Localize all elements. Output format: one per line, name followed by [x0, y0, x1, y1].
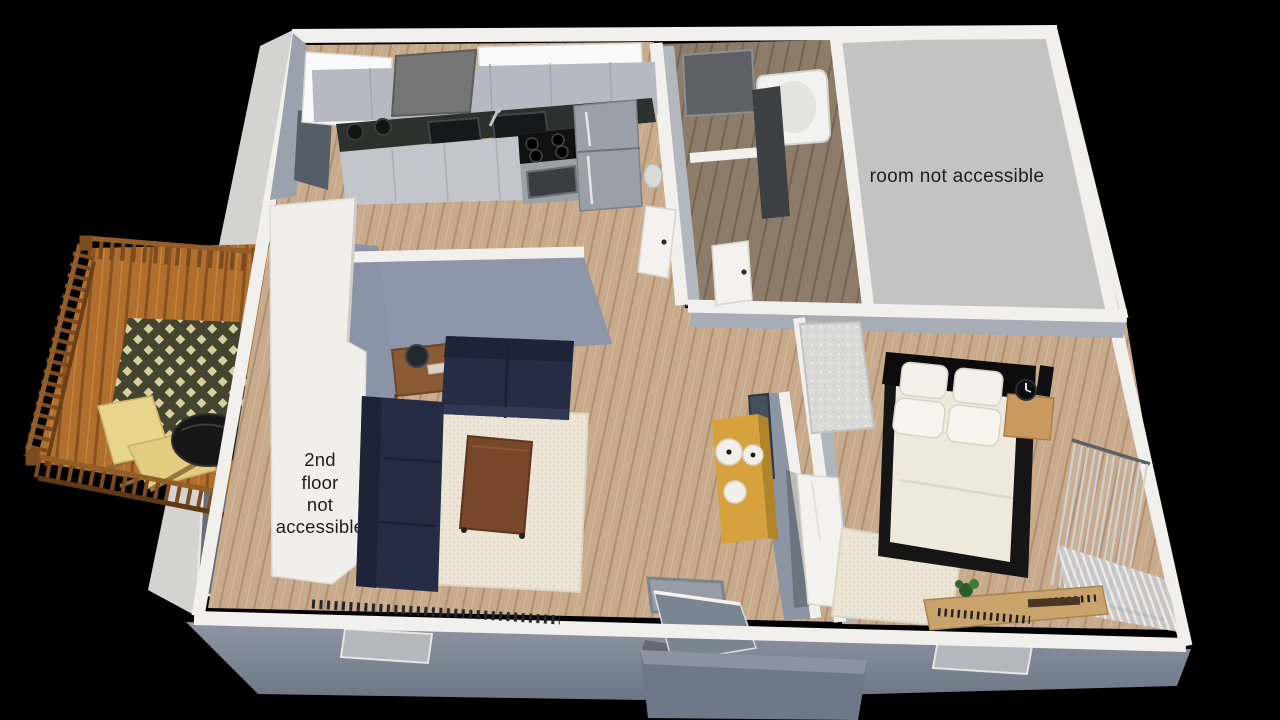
railing-post — [80, 236, 92, 250]
pillow — [952, 368, 1003, 407]
stair-label-line1: 2nd — [304, 449, 335, 470]
back-wall-trim — [292, 32, 1057, 36]
nightstand — [1004, 394, 1054, 440]
pillow — [946, 404, 1002, 447]
railing-post — [26, 450, 39, 465]
fridge — [574, 100, 642, 211]
range-hood — [392, 50, 476, 116]
stove-burner — [530, 150, 542, 162]
bathroom-window — [683, 50, 755, 116]
trash-can — [644, 164, 662, 188]
stove-burner — [552, 134, 564, 146]
cooktop-burner — [347, 124, 363, 140]
plant — [955, 580, 963, 588]
closet-nook — [800, 322, 874, 433]
pillow — [899, 362, 948, 400]
floorplan-svg: room not accessible — [0, 0, 1280, 720]
stairwell-panel: 2nd floor not accessible — [270, 198, 366, 584]
stair-label-line2: floor — [302, 472, 339, 493]
bathroom-inner-wall — [690, 152, 762, 158]
bed — [878, 352, 1036, 578]
fridge-body — [574, 100, 642, 211]
front-window-left — [341, 629, 432, 663]
coffee-table — [460, 436, 532, 539]
stair-label-line3: not — [307, 494, 333, 515]
table-lamp — [406, 345, 428, 367]
bowl-dot — [751, 453, 756, 458]
pillow — [892, 397, 946, 439]
door-handle — [741, 269, 746, 274]
stove-burner — [526, 138, 538, 150]
table-leg — [461, 527, 467, 533]
kitchen — [302, 43, 662, 211]
inaccessible-room-label: room not accessible — [870, 166, 1045, 187]
stove — [518, 128, 583, 204]
faucet — [495, 107, 501, 113]
door-handle — [661, 239, 666, 244]
console-bowl — [724, 481, 746, 503]
plant — [969, 579, 979, 589]
oven-window — [527, 166, 577, 198]
floorplan-render: room not accessible — [0, 0, 1280, 720]
loveseat — [441, 336, 574, 420]
sofa — [356, 396, 444, 592]
table-leg — [519, 533, 525, 539]
bowl-dot — [726, 449, 731, 454]
living-top-wall — [354, 252, 584, 257]
stove-burner — [556, 146, 568, 158]
cooktop-burner — [375, 119, 391, 135]
stair-label-line4: accessible — [276, 516, 364, 537]
